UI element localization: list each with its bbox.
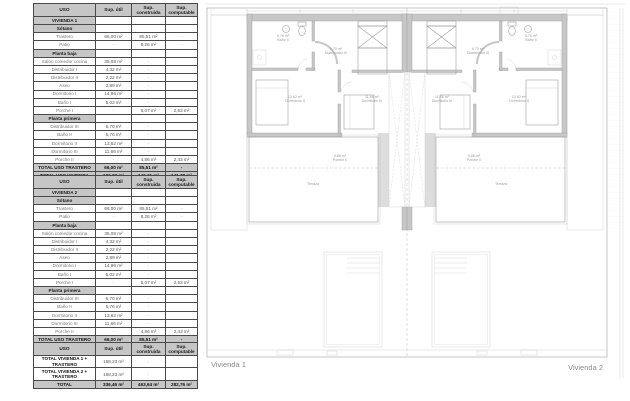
table-cell	[166, 131, 198, 139]
table-cell	[166, 16, 198, 24]
table-cell	[166, 355, 198, 368]
door-arc	[341, 82, 352, 92]
table-row: Baño I5,02 m²-	[34, 270, 198, 278]
side-terrace-hatch	[211, 15, 247, 230]
table-cell	[96, 188, 132, 196]
column-header: Sup. computable	[166, 343, 198, 356]
column-header: Sup. construida	[132, 343, 166, 356]
table-cell	[166, 57, 198, 65]
dimension-line	[247, 9, 567, 13]
table-cell: Baño I	[34, 270, 96, 278]
table-row: Dormitorio II13,62 m²-	[34, 311, 198, 319]
table-cell: -	[96, 213, 132, 221]
table-cell: TOTAL USO TRASTERO	[34, 164, 96, 172]
table-cell	[166, 49, 198, 57]
table-cell: 5,76 m²	[96, 131, 132, 139]
table-cell: -	[132, 147, 166, 155]
table-cell: Sótano	[34, 25, 96, 33]
table-cell: -	[132, 74, 166, 82]
pool-steps	[347, 258, 380, 273]
table-row: Sótano	[34, 25, 198, 33]
table-row: Porche II-4,86 m²2,43 m²	[34, 156, 198, 164]
table-cell: 5,02 m²	[96, 270, 132, 278]
table-cell: -	[132, 57, 166, 65]
table-cell	[166, 237, 198, 245]
table-row: Baño I5,02 m²-	[34, 98, 198, 106]
table-cell: -	[132, 319, 166, 327]
table-cell: -	[132, 295, 166, 303]
table-cell: Porche II	[34, 328, 96, 336]
table-cell: Porche II	[34, 156, 96, 164]
table-cell: Dormitorio I	[34, 262, 96, 270]
column-header: Sup. construida	[132, 4, 166, 17]
table-cell: -	[166, 41, 198, 49]
table-row: Planta baja	[34, 221, 198, 229]
toilet-icon	[298, 22, 306, 36]
column-header: USO	[34, 176, 96, 189]
table-row: Distribuidor I4,32 m²-	[34, 65, 198, 73]
table-cell: -	[96, 156, 132, 164]
table-cell	[166, 74, 198, 82]
table-cell	[166, 270, 198, 278]
table-cell: Dormitorio II	[34, 139, 96, 147]
table-row: Porche I-5,07 m²2,53 m²	[34, 278, 198, 286]
table-cell: 2,43 m²	[166, 328, 198, 336]
table-cell: 14,96 m²	[96, 90, 132, 98]
table-cell	[96, 16, 132, 24]
area-table-vivienda-1: USOSup. útilSup. construidaSup. computab…	[33, 3, 198, 181]
table-cell: 2,89 m²	[96, 82, 132, 90]
table-row: Sótano	[34, 197, 198, 205]
table-cell	[166, 82, 198, 90]
table-cell: Porche I	[34, 278, 96, 286]
room-label: 13,62 m²Dormitorio II	[509, 95, 529, 103]
table-cell	[132, 188, 166, 196]
bed-icon	[256, 80, 288, 125]
table-cell: 11,66 m²	[96, 147, 132, 155]
table-cell: 66,00 m²	[96, 205, 132, 213]
room-label: 4,86 m²Porche II	[333, 154, 347, 162]
table-row: Porche I-5,07 m²2,53 m²	[34, 106, 198, 114]
table-cell: 66,00 m²	[96, 164, 132, 172]
table-cell	[166, 139, 198, 147]
area-table-vivienda-2: USOSup. útilSup. construidaSup. computab…	[33, 175, 198, 353]
column-header: Sup. computable	[166, 176, 198, 189]
table-cell: Distribuidor II	[34, 246, 96, 254]
table-row: Planta primera	[34, 115, 198, 123]
table-cell: Baño I	[34, 98, 96, 106]
table-cell: -	[166, 205, 198, 213]
gate	[277, 350, 293, 355]
table-cell: Planta baja	[34, 49, 96, 57]
table-cell: 6,70 m²	[96, 123, 132, 131]
table-row: Distribuidor III6,70 m²-	[34, 295, 198, 303]
stair-core-icon	[358, 21, 387, 74]
table-cell: 14,96 m²	[96, 262, 132, 270]
table-row: TOTAL VIVIENDA 2 + TRASTERO168,23 m²-	[34, 368, 198, 381]
table-cell	[132, 287, 166, 295]
table-cell: 2,43 m²	[166, 156, 198, 164]
table-row: Baño II5,76 m²-	[34, 131, 198, 139]
table-row: TOTAL336,46 m²463,64 m²282,76 m²	[34, 380, 198, 388]
table-cell: 282,76 m²	[166, 380, 198, 388]
table-row: Distribuidor I4,32 m²-	[34, 237, 198, 245]
header-row: USOSup. útilSup. construidaSup. computab…	[34, 343, 198, 356]
table-cell	[166, 295, 198, 303]
room-label: 11,66 m²Dormitorio III	[432, 95, 453, 103]
table-row: TOTAL USO TRASTERO66,00 m²85,51 m²-	[34, 164, 198, 172]
table-cell	[166, 303, 198, 311]
table-cell: 5,02 m²	[96, 98, 132, 106]
table-cell	[166, 229, 198, 237]
table-cell: -	[166, 164, 198, 172]
table-cell: -	[132, 303, 166, 311]
table-cell	[132, 16, 166, 24]
column-header: Sup. útil	[96, 4, 132, 17]
room-label: 5,76 m²Baño II	[277, 34, 290, 42]
header-row: USOSup. útilSup. construidaSup. computab…	[34, 4, 198, 17]
table-cell: Dormitorio III	[34, 319, 96, 327]
table-cell	[96, 287, 132, 295]
table-cell: Aseo	[34, 82, 96, 90]
table-cell: -	[132, 90, 166, 98]
table-cell: 85,51 m²	[132, 205, 166, 213]
table-cell	[166, 254, 198, 262]
table-cell: Sótano	[34, 197, 96, 205]
table-cell: Distribuidor III	[34, 123, 96, 131]
table-cell: 4,86 m²	[132, 156, 166, 164]
table-row: Distribuidor III6,70 m²-	[34, 123, 198, 131]
table-cell: Distribuidor I	[34, 237, 96, 245]
table-cell: TOTAL VIVIENDA 1 + TRASTERO	[34, 355, 96, 368]
table-cell: 168,23 m²	[96, 355, 132, 368]
table-row: Dormitorio III11,66 m²-	[34, 319, 198, 327]
table-row: TOTAL VIVIENDA 1 + TRASTERO168,23 m²-	[34, 355, 198, 368]
floor-plan: 5,76 m²Baño II6,70 m²Distribuidor III13,…	[200, 0, 630, 401]
table-cell	[132, 221, 166, 229]
table-cell: 85,51 m²	[132, 33, 166, 41]
table-cell	[166, 246, 198, 254]
table-cell: Dormitorio III	[34, 147, 96, 155]
table-cell: -	[132, 139, 166, 147]
table-cell: -	[132, 123, 166, 131]
room-label: 13,62 m²Dormitorio II	[285, 95, 305, 103]
terrace-hatch	[247, 135, 380, 224]
table-cell: VIVIENDA 2	[34, 188, 96, 196]
table-cell: 4,32 m²	[96, 237, 132, 245]
table-cell: -	[132, 311, 166, 319]
column-header: Sup. útil	[96, 176, 132, 189]
area-table-totals: USOSup. útilSup. construidaSup. computab…	[33, 342, 198, 389]
table-cell: Patio	[34, 213, 96, 221]
table-cell: -	[132, 65, 166, 73]
table-cell: -	[96, 328, 132, 336]
table-cell	[166, 98, 198, 106]
room-label: Terraza	[495, 182, 507, 186]
room-label: 5,76 m²Baño II	[525, 34, 538, 42]
table-cell: -	[132, 98, 166, 106]
table-cell	[166, 65, 198, 73]
table-cell: 336,46 m²	[96, 380, 132, 388]
wall	[378, 133, 389, 207]
table-cell: -	[166, 33, 198, 41]
table-row: Planta primera	[34, 287, 198, 295]
table-row: Dormitorio I14,96 m²-	[34, 262, 198, 270]
table-cell	[166, 115, 198, 123]
table-cell	[166, 123, 198, 131]
table-cell: 2,53 m²	[166, 106, 198, 114]
table-row: Patio-8,26 m²-	[34, 41, 198, 49]
table-cell: 2,53 m²	[166, 278, 198, 286]
table-cell	[166, 221, 198, 229]
table-cell: Baño II	[34, 131, 96, 139]
table-cell: Dormitorio II	[34, 311, 96, 319]
table-cell: 5,07 m²	[132, 278, 166, 286]
column-header: Sup. computable	[166, 4, 198, 17]
table-cell	[166, 197, 198, 205]
table-row: Trastero66,00 m²85,51 m²-	[34, 205, 198, 213]
wall	[247, 14, 252, 137]
room-label: 4,86 m²Porche II	[467, 154, 481, 162]
table-row: Distribuidor II2,22 m²-	[34, 246, 198, 254]
table-cell	[166, 311, 198, 319]
table-cell: Salón comedor cocina	[34, 229, 96, 237]
table-cell: 4,86 m²	[132, 328, 166, 336]
table-cell: -	[132, 254, 166, 262]
shower-icon	[253, 50, 266, 65]
table-cell	[166, 368, 198, 381]
table-cell	[96, 49, 132, 57]
table-cell: -	[132, 237, 166, 245]
column-header: Sup. construida	[132, 176, 166, 189]
table-row: Salón comedor cocina35,08 m²-	[34, 57, 198, 65]
gate	[327, 351, 337, 355]
table-cell	[166, 188, 198, 196]
table-cell: Porche I	[34, 106, 96, 114]
room-label: 6,70 m²Distribuidor III	[467, 47, 489, 55]
table-cell: Distribuidor I	[34, 65, 96, 73]
table-row: Porche II-4,86 m²2,43 m²	[34, 328, 198, 336]
table-cell	[166, 287, 198, 295]
table-cell: 13,62 m²	[96, 139, 132, 147]
table-cell	[166, 319, 198, 327]
table-cell: -	[132, 131, 166, 139]
table-cell: 6,70 m²	[96, 295, 132, 303]
table-row: Baño II5,76 m²-	[34, 303, 198, 311]
header-row: USOSup. útilSup. construidaSup. computab…	[34, 176, 198, 189]
table-cell: Trastero	[34, 205, 96, 213]
vivienda-2-label: Vivienda 2	[568, 363, 603, 372]
table-cell: 2,89 m²	[96, 254, 132, 262]
central-void	[389, 72, 405, 207]
table-cell: 8,26 m²	[132, 213, 166, 221]
table-cell: Planta primera	[34, 287, 96, 295]
table-cell	[132, 115, 166, 123]
room-label: Terraza	[307, 182, 319, 186]
table-cell: Planta primera	[34, 115, 96, 123]
table-cell	[166, 90, 198, 98]
table-cell: Trastero	[34, 33, 96, 41]
table-cell	[96, 221, 132, 229]
table-row: Trastero66,00 m²85,51 m²-	[34, 33, 198, 41]
table-cell: Salón comedor cocina	[34, 57, 96, 65]
table-cell: 5,07 m²	[132, 106, 166, 114]
table-cell	[166, 147, 198, 155]
table-cell	[96, 197, 132, 205]
table-cell: Aseo	[34, 254, 96, 262]
table-cell	[132, 197, 166, 205]
room-label: 6,70 m²Distribuidor III	[325, 47, 347, 55]
table-cell: 8,26 m²	[132, 41, 166, 49]
table-cell: 66,00 m²	[96, 33, 132, 41]
party-wall	[402, 14, 407, 72]
table-cell: Distribuidor II	[34, 74, 96, 82]
table-cell: 35,08 m²	[96, 229, 132, 237]
table-cell	[132, 25, 166, 33]
table-cell	[132, 49, 166, 57]
table-cell	[96, 25, 132, 33]
table-cell	[166, 262, 198, 270]
table-row: Patio-8,26 m²-	[34, 213, 198, 221]
table-cell: -	[132, 82, 166, 90]
table-cell: 13,62 m²	[96, 311, 132, 319]
table-cell: -	[132, 355, 166, 368]
table-row: Distribuidor II2,22 m²-	[34, 74, 198, 82]
table-cell: 2,22 m²	[96, 246, 132, 254]
table-cell: -	[132, 368, 166, 381]
table-row: Dormitorio I14,96 m²-	[34, 90, 198, 98]
table-row: VIVIENDA 1	[34, 16, 198, 24]
table-cell	[166, 25, 198, 33]
table-row: Planta baja	[34, 49, 198, 57]
table-cell	[96, 115, 132, 123]
table-row: Dormitorio III11,66 m²-	[34, 147, 198, 155]
table-cell: -	[132, 262, 166, 270]
table-cell: 4,32 m²	[96, 65, 132, 73]
table-cell: 168,23 m²	[96, 368, 132, 381]
table-cell: -	[96, 106, 132, 114]
table-cell: Dormitorio I	[34, 90, 96, 98]
table-row: VIVIENDA 2	[34, 188, 198, 196]
table-row: Aseo2,89 m²-	[34, 82, 198, 90]
table-cell: -	[166, 213, 198, 221]
table-row: Salón comedor cocina35,08 m²-	[34, 229, 198, 237]
column-header: USO	[34, 4, 96, 17]
pool	[324, 252, 382, 347]
vivienda-1-label: Vivienda 1	[211, 360, 246, 369]
table-cell: Distribuidor III	[34, 295, 96, 303]
table-cell: TOTAL VIVIENDA 2 + TRASTERO	[34, 368, 96, 381]
table-cell: VIVIENDA 1	[34, 16, 96, 24]
column-header: USO	[34, 343, 96, 356]
table-row: Aseo2,89 m²-	[34, 254, 198, 262]
table-cell: TOTAL	[34, 380, 96, 388]
sink-icon	[283, 26, 290, 33]
column-header: Sup. útil	[96, 343, 132, 356]
table-cell: 85,51 m²	[132, 164, 166, 172]
table-cell: 35,08 m²	[96, 57, 132, 65]
table-cell: -	[96, 278, 132, 286]
room-label: 11,66 m²Dormitorio III	[362, 95, 383, 103]
party-wall	[402, 207, 407, 230]
table-row: Dormitorio II13,62 m²-	[34, 139, 198, 147]
door-arc	[298, 59, 307, 70]
table-cell: -	[132, 270, 166, 278]
table-cell: -	[96, 41, 132, 49]
table-cell: Patio	[34, 41, 96, 49]
table-cell: 5,76 m²	[96, 303, 132, 311]
drawing-sheet: USOSup. útilSup. construidaSup. computab…	[0, 0, 630, 401]
table-cell: 463,64 m²	[132, 380, 166, 388]
table-cell: 11,66 m²	[96, 319, 132, 327]
wall	[247, 14, 407, 21]
table-cell: Baño II	[34, 303, 96, 311]
table-cell: -	[132, 246, 166, 254]
table-cell: Planta baja	[34, 221, 96, 229]
table-cell: 2,22 m²	[96, 74, 132, 82]
table-cell: -	[132, 229, 166, 237]
